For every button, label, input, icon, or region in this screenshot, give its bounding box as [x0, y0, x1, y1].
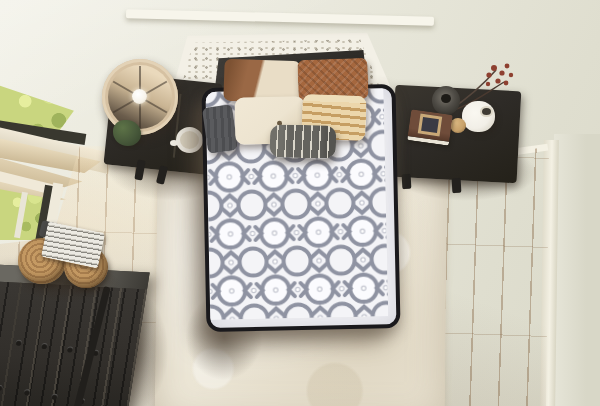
white-jar-opening — [482, 108, 491, 115]
bedroom-scene — [0, 0, 600, 406]
nightstand-right-leg — [402, 174, 412, 189]
dark-vase-opening — [441, 94, 451, 103]
mug-handle — [170, 140, 178, 146]
photo-frame — [418, 114, 443, 137]
white-mug — [176, 127, 203, 153]
gray-knit-pillow — [202, 104, 238, 154]
gray-striped-lumbar-pillow — [270, 124, 337, 158]
white-jar — [462, 101, 495, 132]
nightstand-right-leg — [452, 178, 462, 193]
right-wall — [554, 134, 600, 406]
lamp-bulb — [132, 89, 147, 104]
wooden-sphere — [450, 118, 466, 133]
potted-plant — [113, 120, 141, 146]
